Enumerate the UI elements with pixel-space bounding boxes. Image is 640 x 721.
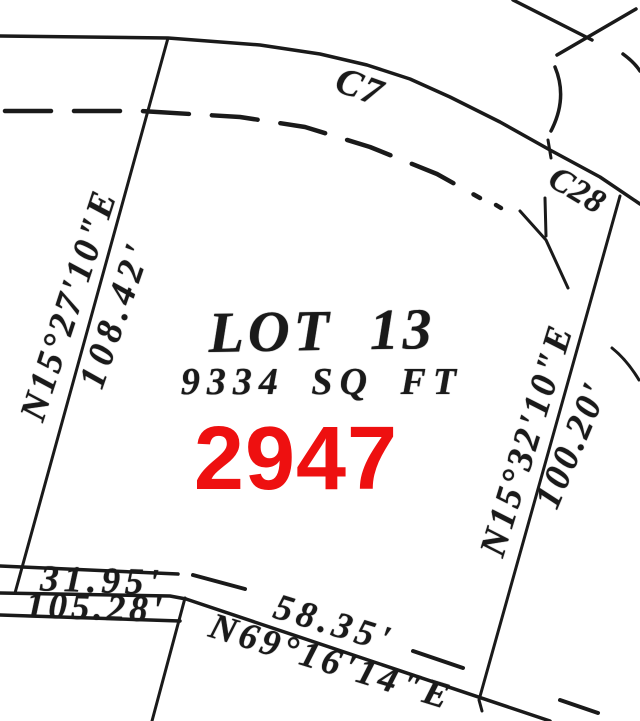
c28-arc-fragment (551, 67, 561, 131)
lot-title: LOT 13 (208, 300, 436, 362)
diagonal-dash-3 (560, 700, 598, 713)
curve-corner-tick (548, 140, 551, 158)
corner-tick (545, 198, 546, 236)
top-right-lot-line (513, 0, 592, 40)
top-right-cross-tick (557, 9, 636, 55)
top-boundary-curve-c7 (0, 36, 640, 204)
left-lot-line (15, 38, 168, 593)
road-centerline-dashed (5, 111, 480, 198)
diagonal-dash-1 (193, 575, 245, 589)
adjacent-lot-segment (520, 211, 568, 288)
parcel-number: 2947 (194, 414, 398, 504)
bottom-lower-distance: 105.28' (25, 587, 166, 629)
right-edge-arc (612, 348, 639, 380)
diagonal-dash-2 (413, 651, 463, 668)
plat-map: C7 C28 N15°27'10"E 108.42' N15°32'10"E 1… (0, 0, 640, 721)
road-centerline-dot (496, 205, 501, 208)
lot-area: 9334 SQ FT (181, 363, 463, 401)
top-right-small-arc (623, 54, 640, 71)
